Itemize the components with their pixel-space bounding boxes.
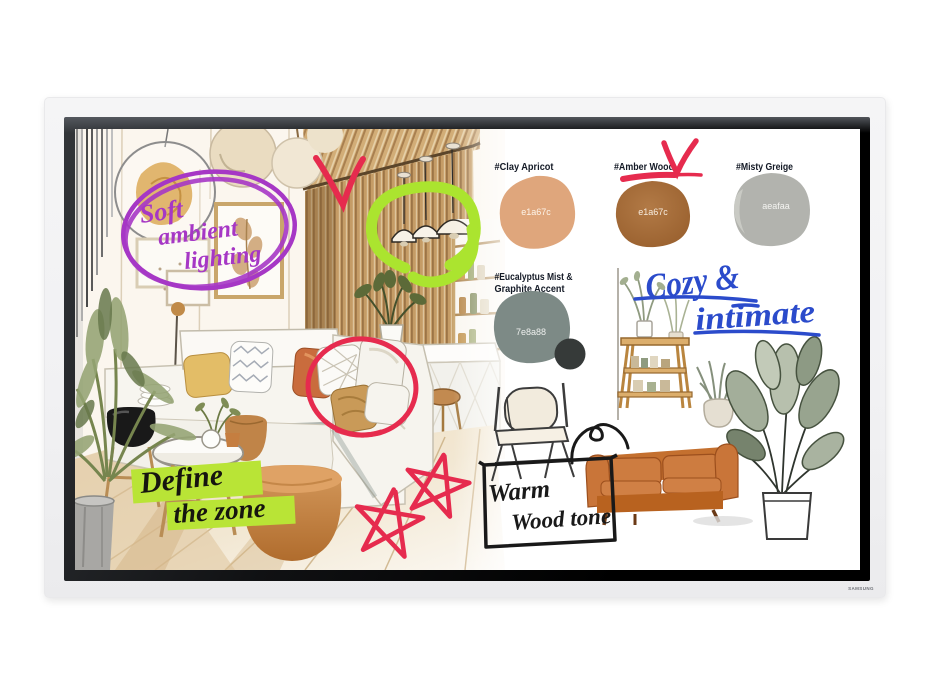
svg-text:#Amber Wood: #Amber Wood — [614, 161, 674, 173]
svg-text:#Misty Greige: #Misty Greige — [736, 161, 793, 173]
svg-text:#Clay Apricot: #Clay Apricot — [495, 161, 554, 173]
svg-text:e1a67c: e1a67c — [638, 207, 668, 217]
svg-text:7e8a88: 7e8a88 — [516, 327, 546, 337]
svg-text:Warm: Warm — [487, 476, 551, 508]
svg-text:the zone: the zone — [172, 493, 266, 529]
svg-text:#Eucalyptus Mist &: #Eucalyptus Mist & — [495, 271, 573, 283]
svg-text:e1a67c: e1a67c — [521, 207, 551, 217]
svg-text:aeafaa: aeafaa — [762, 201, 790, 211]
